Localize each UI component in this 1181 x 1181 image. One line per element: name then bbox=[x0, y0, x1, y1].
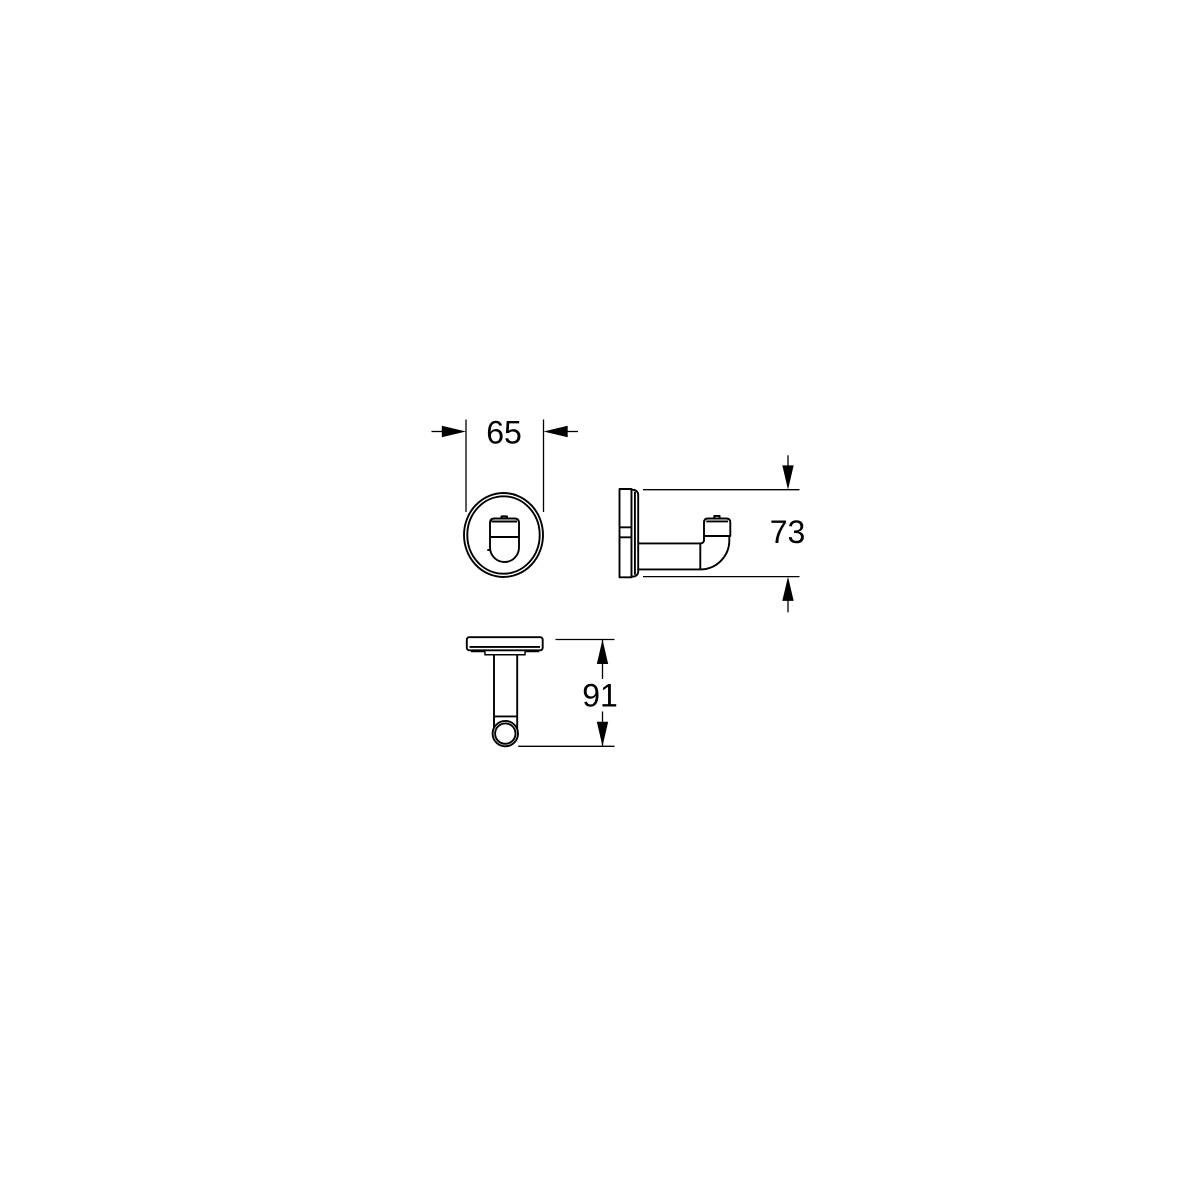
arrowhead-down-icon bbox=[597, 722, 608, 747]
front-hook-tip-outline bbox=[490, 519, 519, 563]
arrowhead-right-icon bbox=[442, 426, 466, 438]
dimension-depth-label: 91 bbox=[582, 678, 618, 714]
arrowhead-up-icon bbox=[597, 640, 608, 665]
top-view bbox=[467, 637, 543, 746]
dimension-width-label: 65 bbox=[486, 415, 522, 451]
dimension-depth: 91 bbox=[518, 640, 618, 747]
top-hook-tip-outer-circle bbox=[493, 721, 518, 746]
side-arm-top-edge bbox=[638, 536, 704, 543]
technical-drawing-canvas: 65 73 bbox=[0, 0, 1181, 1181]
front-view bbox=[464, 493, 543, 577]
dimension-height-label: 73 bbox=[770, 514, 806, 550]
arrowhead-up-icon bbox=[782, 577, 793, 601]
side-plate-body bbox=[620, 489, 632, 577]
top-plate-bar bbox=[467, 637, 543, 650]
arrowhead-left-icon bbox=[544, 426, 568, 438]
arrowhead-down-icon bbox=[782, 465, 793, 489]
side-view bbox=[620, 489, 731, 577]
drawing-page: 65 73 bbox=[0, 0, 1181, 1181]
